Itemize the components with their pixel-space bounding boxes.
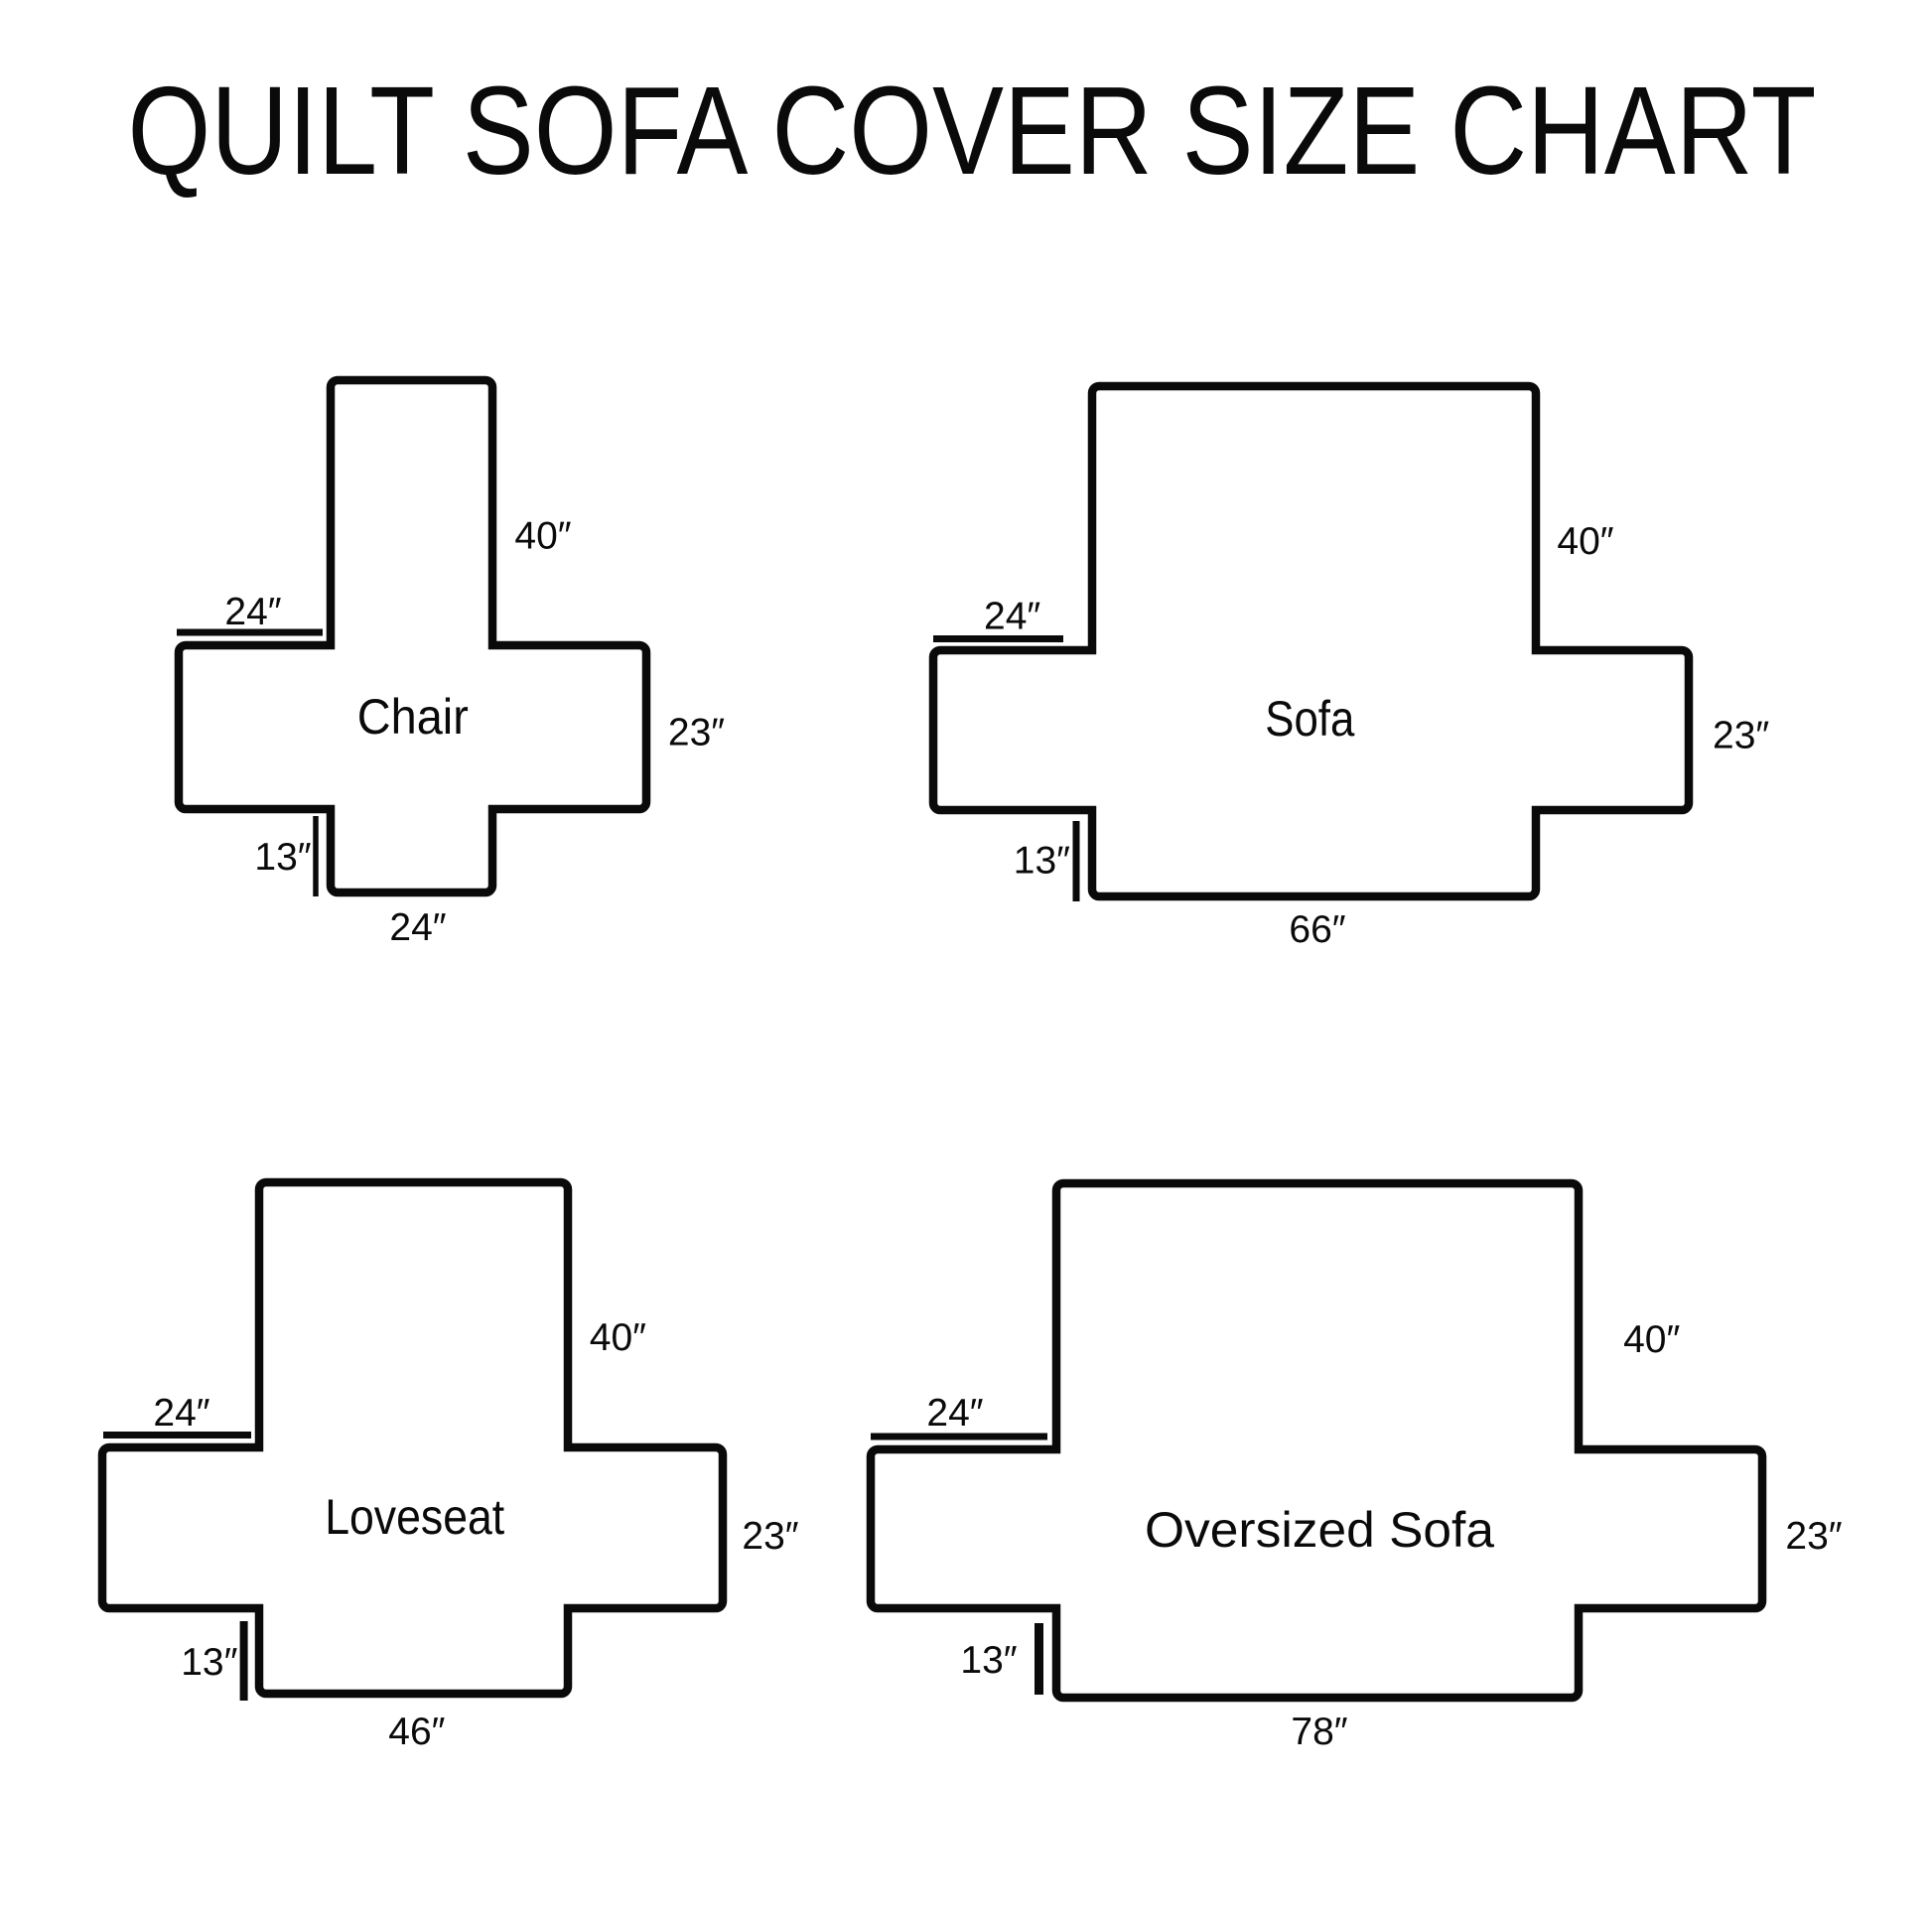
svg-text:40″: 40″ <box>1557 520 1613 563</box>
svg-text:66″: 66″ <box>1289 908 1345 951</box>
svg-text:24″: 24″ <box>153 1392 209 1435</box>
svg-text:23″: 23″ <box>668 712 725 754</box>
svg-text:24″: 24″ <box>389 906 446 949</box>
svg-text:24″: 24″ <box>224 591 281 633</box>
svg-text:Loveseat: Loveseat <box>325 1489 504 1545</box>
svg-text:13″: 13″ <box>181 1641 237 1684</box>
svg-text:QUILT SOFA COVER SIZE CHART: QUILT SOFA COVER SIZE CHART <box>128 61 1817 201</box>
svg-text:23″: 23″ <box>1785 1515 1842 1558</box>
svg-text:Chair: Chair <box>357 689 469 745</box>
svg-text:46″: 46″ <box>388 1711 445 1753</box>
svg-text:40″: 40″ <box>1623 1318 1680 1361</box>
svg-text:24″: 24″ <box>926 1392 983 1435</box>
svg-text:78″: 78″ <box>1291 1711 1347 1753</box>
svg-text:13″: 13″ <box>960 1639 1017 1682</box>
svg-text:13″: 13″ <box>1014 840 1070 883</box>
svg-text:Oversized Sofa: Oversized Sofa <box>1145 1502 1494 1558</box>
svg-text:23″: 23″ <box>1713 715 1769 757</box>
svg-text:23″: 23″ <box>742 1515 798 1558</box>
svg-text:Sofa: Sofa <box>1265 691 1354 747</box>
svg-text:40″: 40″ <box>514 515 571 558</box>
svg-text:24″: 24″ <box>984 596 1040 638</box>
svg-text:13″: 13″ <box>254 836 311 879</box>
svg-text:40″: 40″ <box>590 1316 646 1359</box>
